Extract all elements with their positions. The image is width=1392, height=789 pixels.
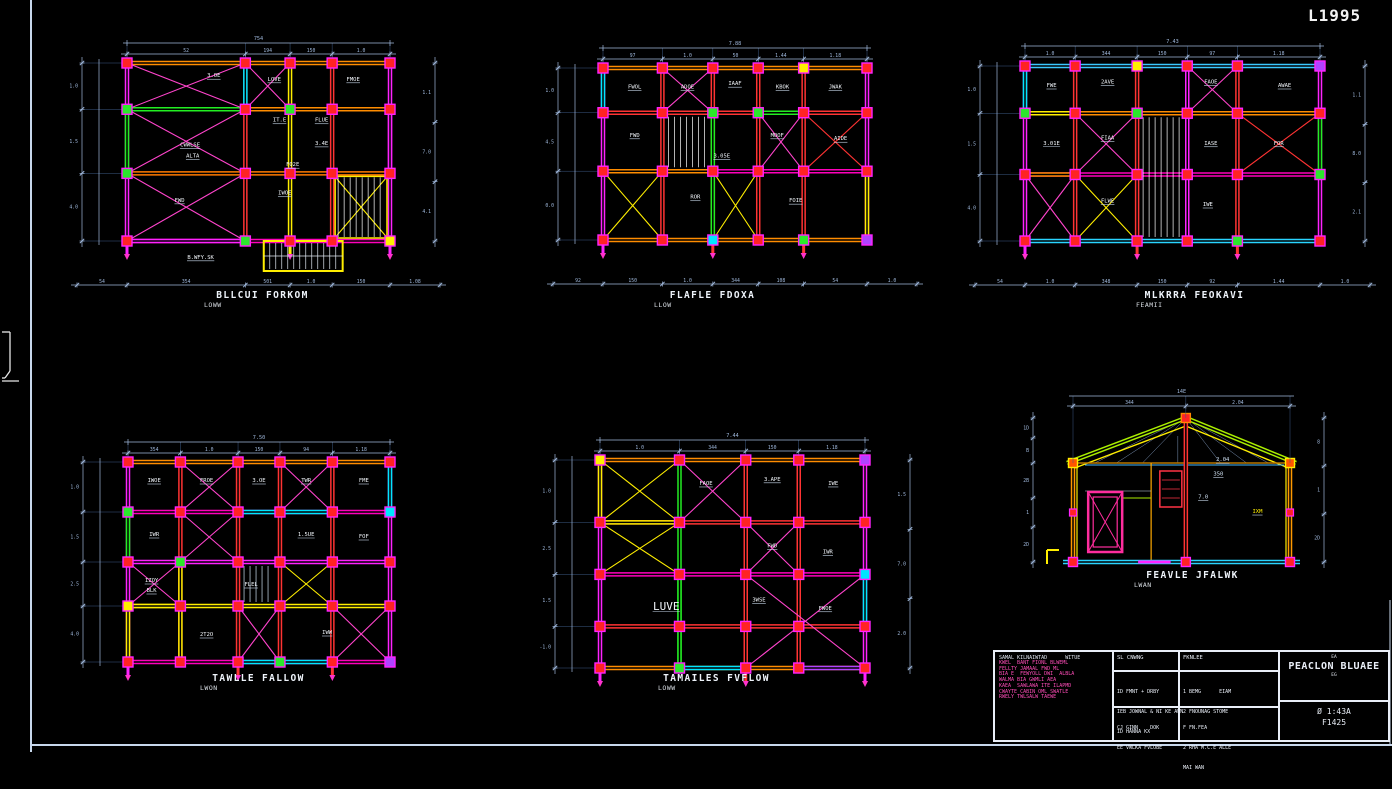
- title-block-drawn-column: SL CNWNG ID FMNT + DRBY IEB JOWNAL & NI …: [1114, 652, 1180, 740]
- svg-text:1.5: 1.5: [967, 141, 976, 147]
- svg-text:IT.E: IT.E: [273, 118, 286, 124]
- svg-text:754: 754: [254, 36, 263, 42]
- plan1-caption-title: BLLCUI FORKOM: [170, 291, 355, 301]
- svg-text:54: 54: [832, 278, 838, 284]
- svg-text:1.5: 1.5: [542, 598, 551, 604]
- notes-line: RWELY TWLSALW TAEWE: [999, 695, 1108, 701]
- plan3-caption-sub: FEAMII: [1102, 301, 1287, 309]
- project-row: 2 RHA M.C.E ALLE: [1183, 745, 1275, 752]
- plan5-caption-title: TAMAILES FVFLOW: [624, 674, 809, 684]
- svg-text:FLUE: FLUE: [315, 118, 328, 124]
- svg-text:2B: 2B: [1023, 478, 1029, 484]
- svg-text:2D: 2D: [1314, 536, 1320, 542]
- section-caption: FEAVLE JFALWK LWAN: [1100, 571, 1285, 589]
- drawing-number-cell: Ø 1:43A F1425: [1280, 702, 1388, 728]
- drawing-number: F1425: [1280, 717, 1388, 728]
- svg-text:150: 150: [357, 279, 366, 285]
- svg-text:1.0: 1.0: [542, 489, 551, 495]
- svg-text:ROR: ROR: [690, 195, 701, 201]
- drawn-column-header: SL CNWNG: [1114, 652, 1178, 672]
- svg-text:FWD: FWD: [175, 198, 185, 204]
- svg-text:150: 150: [628, 278, 637, 284]
- svg-text:FOR: FOR: [1274, 141, 1285, 147]
- svg-text:1.18: 1.18: [1273, 51, 1285, 57]
- svg-text:BLK: BLK: [147, 588, 158, 594]
- svg-text:7.0: 7.0: [1198, 495, 1208, 501]
- svg-text:1.44: 1.44: [775, 53, 787, 59]
- svg-text:IWE: IWE: [1203, 202, 1213, 208]
- svg-text:1.0: 1.0: [967, 87, 976, 93]
- svg-text:ADOE: ADOE: [681, 85, 694, 91]
- svg-text:2.04: 2.04: [1232, 400, 1244, 406]
- title-block-project-column: FKNLEE 1 BEMG EIAM 2 FNOUNAG STOME F FN.…: [1180, 652, 1280, 740]
- svg-text:1.5: 1.5: [70, 535, 79, 541]
- svg-text:2.5: 2.5: [70, 582, 79, 588]
- svg-text:194: 194: [263, 48, 272, 54]
- svg-text:344: 344: [708, 445, 717, 451]
- svg-text:344: 344: [1125, 400, 1134, 406]
- section-caption-title: FEAVLE JFALWK: [1100, 571, 1285, 581]
- svg-text:FWD: FWD: [630, 133, 640, 139]
- svg-text:FAOE: FAOE: [699, 481, 712, 487]
- svg-text:0.0: 0.0: [545, 203, 554, 209]
- svg-text:2.1: 2.1: [1352, 209, 1361, 215]
- svg-text:108: 108: [777, 278, 786, 284]
- svg-text:1.1: 1.1: [422, 90, 431, 96]
- svg-text:2.5: 2.5: [542, 546, 551, 552]
- project-column-header: FKNLEE: [1180, 652, 1278, 672]
- svg-text:TWR: TWR: [301, 478, 312, 484]
- svg-text:7.0: 7.0: [422, 150, 431, 156]
- svg-text:CWWLSE: CWWLSE: [180, 143, 200, 149]
- svg-text:IWOE: IWOE: [148, 478, 161, 484]
- svg-text:3WSE: 3WSE: [752, 597, 765, 603]
- title-block-name-cell: EA PEACLON BLUAEE EG Ø 1:43A F1425: [1280, 652, 1388, 740]
- svg-text:3.01E: 3.01E: [1043, 141, 1060, 147]
- svg-text:1.18: 1.18: [830, 53, 842, 59]
- svg-text:1.0: 1.0: [683, 278, 692, 284]
- plan3-caption: MLKRRA FEOKAVI FEAMII: [1102, 291, 1287, 309]
- project-row: 1 BEMG EIAM: [1183, 689, 1275, 696]
- drawn-column-mid: ID FMNT + DRBY IEB JOWNAL & NI KE AWN ID…: [1114, 672, 1178, 708]
- svg-text:2T2O: 2T2O: [200, 632, 213, 638]
- svg-text:1.0: 1.0: [1046, 51, 1055, 57]
- svg-text:350: 350: [1213, 472, 1223, 478]
- title-block-notes: SAMAL KILNAIWTAD WITUE KWEL BANT FIONL B…: [995, 652, 1114, 740]
- svg-text:354: 354: [150, 447, 159, 453]
- plan4-caption-title: TAWLLE FALLOW: [166, 674, 351, 684]
- svg-text:1.5: 1.5: [69, 139, 78, 145]
- svg-text:1.0: 1.0: [357, 48, 366, 54]
- svg-text:ALTA: ALTA: [186, 153, 200, 159]
- drawn-column-bottom: CJ GINN DOK EE VWLKA FVLOBE: [1114, 708, 1178, 768]
- svg-text:344: 344: [731, 278, 740, 284]
- svg-text:3.4E: 3.4E: [315, 141, 328, 147]
- svg-text:52: 52: [183, 48, 189, 54]
- svg-text:344: 344: [1102, 51, 1111, 57]
- svg-text:FWD: FWD: [767, 543, 777, 549]
- svg-text:1: 1: [1026, 510, 1029, 516]
- svg-text:54: 54: [99, 279, 105, 285]
- svg-text:92: 92: [575, 278, 581, 284]
- svg-text:150: 150: [768, 445, 777, 451]
- svg-text:1D: 1D: [1023, 426, 1029, 432]
- svg-text:IASE: IASE: [1204, 141, 1217, 147]
- svg-text:FWE: FWE: [1047, 83, 1057, 89]
- plan5-caption: TAMAILES FVFLOW LOWW: [624, 674, 809, 692]
- svg-text:1.5UE: 1.5UE: [298, 532, 315, 538]
- svg-text:7.88: 7.88: [729, 41, 742, 47]
- svg-text:IWR: IWR: [823, 550, 834, 556]
- drawing-name: EA PEACLON BLUAEE EG: [1280, 652, 1388, 702]
- svg-text:FMOE: FMOE: [347, 77, 360, 83]
- svg-text:1.18: 1.18: [355, 447, 367, 453]
- svg-text:FWOE: FWOE: [819, 606, 832, 612]
- svg-text:FWOL: FWOL: [628, 85, 642, 91]
- svg-text:4.0: 4.0: [69, 205, 78, 211]
- svg-text:7.43: 7.43: [1166, 39, 1179, 45]
- svg-text:AIDE: AIDE: [834, 136, 847, 142]
- svg-text:FOF: FOF: [359, 534, 369, 540]
- svg-text:1.5: 1.5: [897, 492, 906, 498]
- svg-text:97: 97: [1209, 51, 1215, 57]
- project-row: MAI WAN: [1183, 765, 1275, 772]
- svg-text:348: 348: [1102, 279, 1111, 285]
- svg-text:4.1: 4.1: [422, 209, 431, 215]
- svg-text:1.0: 1.0: [635, 445, 644, 451]
- svg-text:3.05E: 3.05E: [714, 153, 731, 159]
- svg-text:IWE: IWE: [828, 481, 838, 487]
- svg-text:3.OE: 3.OE: [207, 73, 220, 79]
- plan2-caption: FLAFLE FDOXA LLOW: [620, 291, 805, 309]
- cad-sheet: { "sheet": { "code": "L1995" }, "colors"…: [0, 0, 1392, 752]
- svg-text:IWW: IWW: [322, 630, 333, 636]
- svg-text:1.0: 1.0: [683, 53, 692, 59]
- svg-text:-1.0: -1.0: [539, 645, 551, 651]
- svg-text:FAOE: FAOE: [1204, 80, 1217, 86]
- svg-text:150: 150: [255, 447, 264, 453]
- svg-text:8: 8: [1317, 440, 1320, 446]
- project-column-mid: 1 BEMG EIAM 2 FNOUNAG STOME: [1180, 672, 1278, 708]
- svg-text:JWAK: JWAK: [829, 85, 843, 91]
- plan3-caption-title: MLKRRA FEOKAVI: [1102, 291, 1287, 301]
- plan2-caption-sub: LLOW: [620, 301, 805, 309]
- svg-text:1.0: 1.0: [70, 485, 79, 491]
- svg-text:7.44: 7.44: [726, 433, 739, 439]
- svg-text:1.0: 1.0: [1341, 279, 1350, 285]
- svg-text:4.5: 4.5: [545, 139, 554, 145]
- svg-text:1.18: 1.18: [826, 445, 838, 451]
- svg-text:FIAA: FIAA: [1101, 136, 1115, 142]
- svg-text:LOVE: LOVE: [268, 77, 281, 83]
- svg-text:FROE: FROE: [200, 478, 213, 484]
- plan1-caption: BLLCUI FORKOM LOWW: [170, 291, 355, 309]
- svg-text:1.0: 1.0: [1046, 279, 1055, 285]
- svg-text:50: 50: [733, 53, 739, 59]
- svg-text:FLEL: FLEL: [245, 582, 259, 588]
- svg-text:IZOY: IZOY: [145, 578, 159, 584]
- svg-text:FO2E: FO2E: [286, 162, 299, 168]
- svg-text:B: B: [1026, 448, 1029, 454]
- svg-text:1.0: 1.0: [545, 88, 554, 94]
- drawn-row: CJ GINN DOK: [1117, 725, 1175, 732]
- svg-text:92: 92: [1209, 279, 1215, 285]
- svg-text:AWAE: AWAE: [1278, 83, 1291, 89]
- svg-text:MOOF: MOOF: [771, 133, 784, 139]
- svg-text:IAAF: IAAF: [728, 81, 741, 87]
- svg-text:2D: 2D: [1023, 542, 1029, 548]
- svg-text:IXM: IXM: [1252, 509, 1263, 515]
- svg-text:94: 94: [303, 447, 309, 453]
- section-caption-sub: LWAN: [1100, 581, 1285, 589]
- drawing-name-small-sub: EG: [1280, 673, 1388, 678]
- svg-text:1.0: 1.0: [205, 447, 214, 453]
- project-row: F FN.FEA: [1183, 725, 1275, 732]
- sheet-code: L1995: [1308, 6, 1361, 25]
- drawn-row: IEB JOWNAL & NI KE AWN: [1117, 709, 1175, 716]
- svg-text:8.0: 8.0: [1352, 151, 1361, 157]
- svg-text:KBOK: KBOK: [776, 85, 790, 91]
- svg-text:2.0: 2.0: [897, 631, 906, 637]
- svg-text:4.0: 4.0: [967, 205, 976, 211]
- svg-text:7.50: 7.50: [253, 435, 266, 441]
- svg-text:54: 54: [997, 279, 1003, 285]
- drawn-row: EE VWLKA FVLOBE: [1117, 745, 1175, 752]
- svg-text:1.1: 1.1: [1352, 93, 1361, 99]
- svg-text:IWOE: IWOE: [278, 191, 291, 197]
- drawn-row: ID FMNT + DRBY: [1117, 689, 1175, 696]
- plan4-caption-sub: LWON: [166, 684, 351, 692]
- svg-text:501: 501: [263, 279, 272, 285]
- svg-text:150: 150: [1158, 279, 1167, 285]
- plan4-caption: TAWLLE FALLOW LWON: [166, 674, 351, 692]
- svg-text:FME: FME: [359, 478, 369, 484]
- svg-text:IWR: IWR: [149, 532, 160, 538]
- plan2-caption-title: FLAFLE FDOXA: [620, 291, 805, 301]
- cad-canvas: LOVEFMOE3.OEIT.EFLUECWWLSEALTA3.4EFO2EIW…: [0, 0, 1392, 752]
- svg-text:2AVE: 2AVE: [1101, 80, 1114, 86]
- svg-text:7.0: 7.0: [897, 562, 906, 568]
- svg-text:1.0: 1.0: [307, 279, 316, 285]
- svg-text:1.0: 1.0: [888, 278, 897, 284]
- svg-text:2.04: 2.04: [1216, 457, 1230, 463]
- plan5-caption-sub: LOWW: [624, 684, 809, 692]
- drawing-title: PEACLON BLUAEE: [1280, 660, 1388, 673]
- drawing-scale: Ø 1:43A: [1280, 706, 1388, 717]
- svg-text:1.44: 1.44: [1273, 279, 1285, 285]
- svg-text:3.APE: 3.APE: [764, 477, 781, 483]
- svg-text:FOIE: FOIE: [789, 198, 802, 204]
- plan1-caption-sub: LOWW: [170, 301, 355, 309]
- svg-text:14E: 14E: [1177, 389, 1186, 395]
- svg-text:LUVE: LUVE: [653, 600, 680, 613]
- title-block: SAMAL KILNAIWTAD WITUE KWEL BANT FIONL B…: [993, 650, 1390, 742]
- project-column-bottom: F FN.FEA 2 RHA M.C.E ALLE MAI WAN: [1180, 708, 1278, 789]
- svg-text:1.0: 1.0: [69, 84, 78, 90]
- svg-text:B.WFY.SK: B.WFY.SK: [187, 255, 214, 261]
- svg-text:150: 150: [307, 48, 316, 54]
- svg-text:3.OE: 3.OE: [252, 478, 265, 484]
- svg-text:354: 354: [182, 279, 191, 285]
- svg-text:4.0: 4.0: [70, 632, 79, 638]
- svg-text:1: 1: [1317, 488, 1320, 494]
- svg-text:150: 150: [1158, 51, 1167, 57]
- svg-text:1.08: 1.08: [409, 279, 421, 285]
- svg-text:97: 97: [630, 53, 636, 59]
- svg-text:FLWE: FLWE: [1101, 199, 1114, 205]
